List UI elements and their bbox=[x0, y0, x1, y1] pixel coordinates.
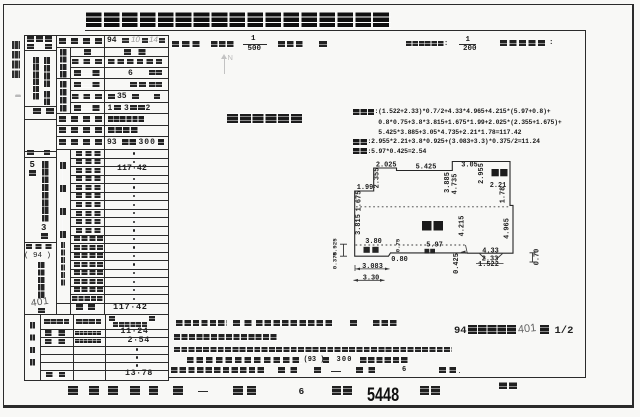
svg-text:1.522: 1.522 bbox=[478, 261, 499, 269]
svg-text:4.33: 4.33 bbox=[482, 248, 499, 256]
svg-text:5.425: 5.425 bbox=[416, 163, 437, 171]
svg-text:0.375: 0.375 bbox=[332, 251, 339, 269]
svg-text:1.675: 1.675 bbox=[356, 191, 364, 212]
svg-text:3.30: 3.30 bbox=[363, 274, 380, 282]
svg-text:0.425: 0.425 bbox=[453, 253, 461, 274]
svg-text:0.80: 0.80 bbox=[391, 256, 408, 264]
svg-text:1.78: 1.78 bbox=[500, 187, 508, 204]
svg-text:4.735: 4.735 bbox=[452, 174, 460, 195]
svg-text:4.965: 4.965 bbox=[504, 218, 512, 239]
svg-text:4.215: 4.215 bbox=[459, 216, 467, 237]
svg-text:2.355: 2.355 bbox=[374, 168, 382, 189]
svg-text:3.083: 3.083 bbox=[362, 263, 383, 271]
svg-text:3.05: 3.05 bbox=[461, 161, 478, 169]
svg-text:5.97: 5.97 bbox=[426, 241, 443, 249]
svg-text:3.80: 3.80 bbox=[365, 238, 382, 246]
svg-text:3.815: 3.815 bbox=[355, 214, 363, 235]
svg-text:2.955: 2.955 bbox=[478, 163, 486, 184]
svg-text:0.70: 0.70 bbox=[534, 249, 542, 266]
svg-text:0.75: 0.75 bbox=[395, 238, 402, 252]
